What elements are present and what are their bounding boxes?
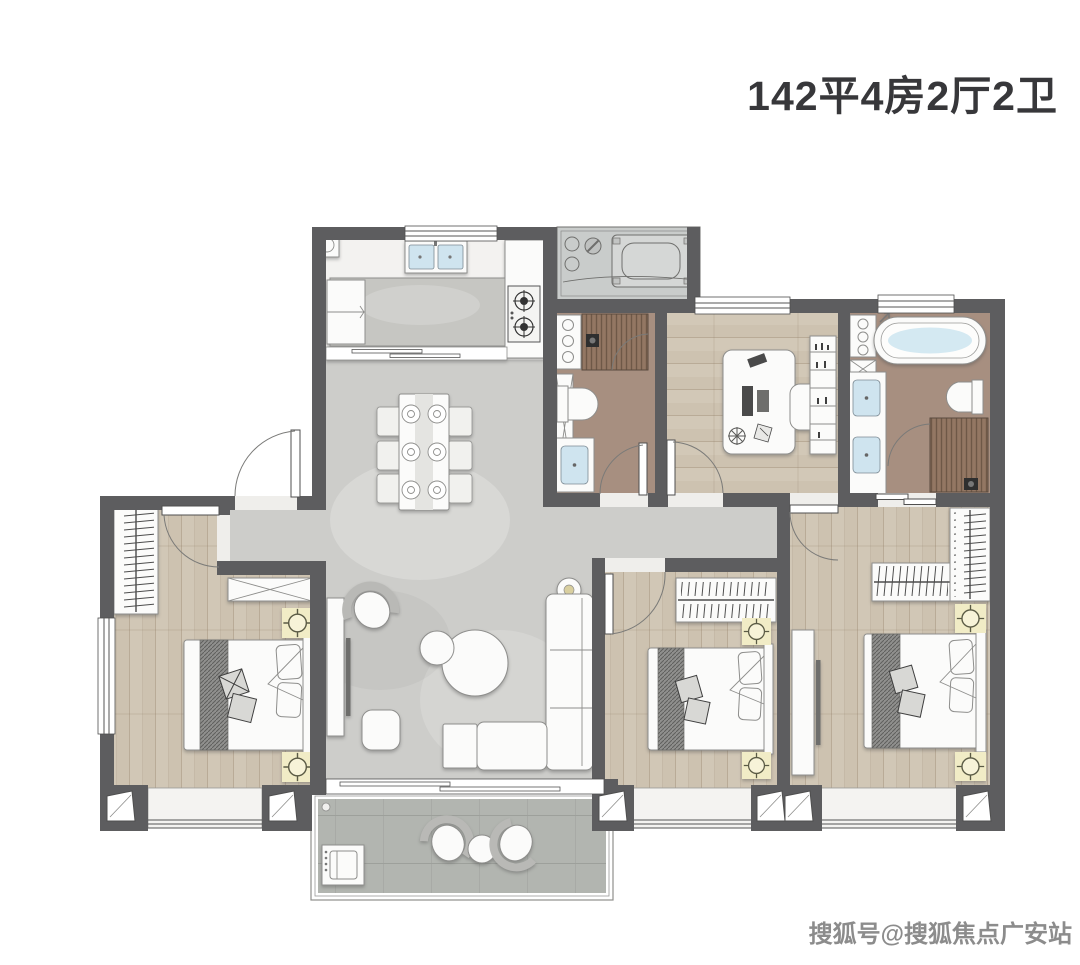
desk — [723, 350, 795, 454]
plan-title: 142平4房2厅2卫 — [747, 73, 1058, 119]
bedroom2-bed — [648, 644, 773, 754]
headboard — [764, 644, 773, 754]
kitchen-sliding-door — [326, 347, 507, 360]
study-window — [695, 297, 790, 314]
gas-stove — [505, 240, 545, 358]
balcony-sliding-door — [326, 779, 604, 794]
watermark: 搜狐号@搜狐焦点广安站 搜狐号@搜狐焦点广安站 — [809, 920, 1074, 950]
master-tv — [816, 660, 821, 745]
coffee-table-small — [420, 631, 454, 665]
sofa-side-table — [443, 724, 477, 768]
master-bed — [864, 630, 986, 752]
kitchen-window — [405, 226, 497, 241]
bedroom1-bed — [184, 636, 312, 754]
entry-door — [235, 430, 300, 510]
bedroom1-shoe-cabinet — [228, 578, 312, 601]
bath2-cabinet — [850, 315, 876, 378]
bath1-cabinet — [556, 315, 581, 369]
drain-cap — [585, 238, 601, 254]
pouf — [362, 710, 400, 750]
corner-window — [599, 791, 627, 821]
double-vanity — [848, 372, 886, 494]
corner-window — [107, 791, 135, 821]
ac-outdoor-unit — [612, 235, 692, 287]
tv — [346, 638, 351, 716]
kitchen-sink — [405, 236, 467, 273]
bath1-shower — [582, 314, 648, 370]
bathtub — [874, 313, 986, 364]
washing-machine — [322, 845, 364, 885]
headboard — [976, 630, 986, 752]
dining-set — [377, 394, 472, 510]
floor-plan-page: 142平4房2厅2卫 搜狐号@搜狐焦点广安站 搜狐号@搜狐焦点广安站 — [0, 0, 1080, 965]
study-furniture — [723, 336, 836, 454]
corner-window — [785, 791, 813, 821]
bedroom1-window — [98, 618, 115, 734]
svg-text:搜狐号@搜狐焦点广安站: 搜狐号@搜狐焦点广安站 — [809, 920, 1072, 948]
corner-window — [269, 791, 297, 821]
bedroom1-wardrobe — [114, 500, 158, 614]
floor-plan-canvas: 142平4房2厅2卫 搜狐号@搜狐焦点广安站 搜狐号@搜狐焦点广安站 — [0, 0, 1080, 965]
bath2-toilet — [946, 380, 983, 414]
master-bath-window — [878, 295, 954, 313]
corner-window — [757, 791, 785, 821]
bedroom2-wardrobe — [676, 578, 776, 622]
tv-cabinet — [327, 598, 344, 736]
equipment-platform — [557, 227, 700, 300]
corner-window — [963, 791, 991, 821]
fridge — [327, 280, 365, 344]
bookshelf — [810, 336, 836, 454]
master-bath-sliding-door — [876, 493, 936, 507]
master-tv-cabinet — [792, 630, 814, 775]
bath1-vanity — [556, 438, 594, 492]
bath1-toilet — [557, 386, 598, 422]
